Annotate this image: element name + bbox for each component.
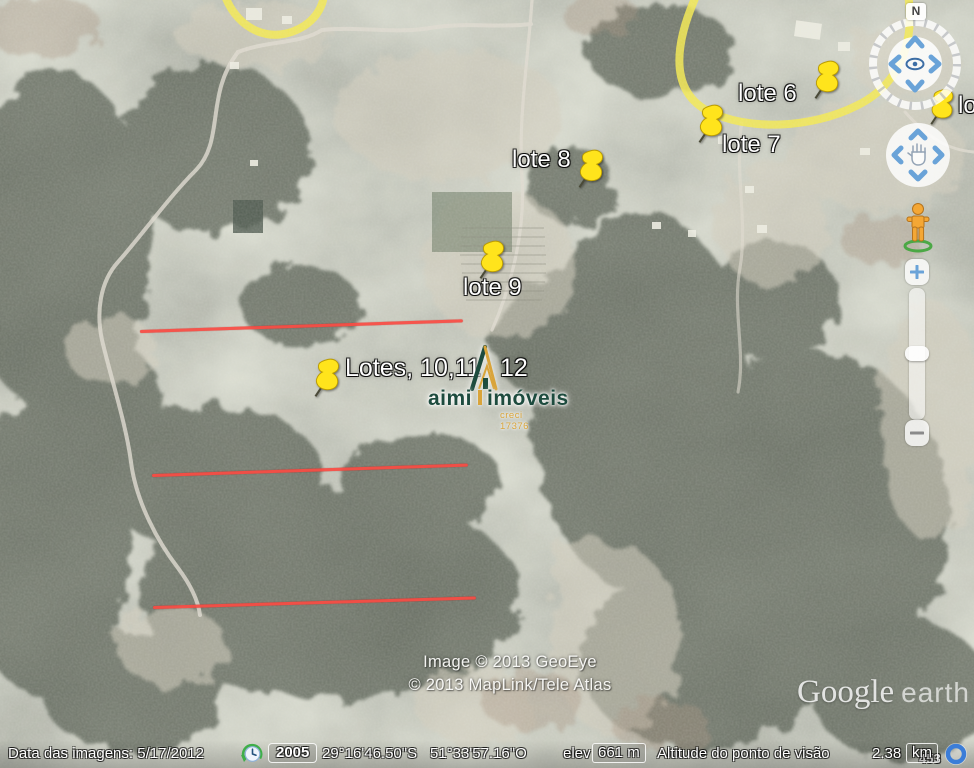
pegman-figure-icon [907, 204, 929, 242]
zoom-out-button[interactable] [905, 420, 929, 446]
imagery-date-label: Data das imagens: [8, 745, 133, 762]
pushpin-icon [812, 60, 842, 102]
status-bar: Data das imagens: 5/17/2012 2005 29°16'4… [0, 740, 974, 768]
pushpin-icon [576, 148, 606, 192]
minus-icon [910, 430, 924, 436]
google-earth-watermark: Google earth [797, 674, 970, 711]
google-logo-text: Google [797, 674, 894, 711]
placemark-label: Lotes, 10,11 [345, 356, 481, 381]
google-earth-viewport: lote 6 lote 7 lote 8 lote 9 lo Lotes, 10… [0, 0, 974, 768]
compass-north-tab[interactable]: N [906, 3, 926, 20]
imagery-credits: Image © 2013 GeoEye © 2013 MapLink/Tele … [385, 651, 635, 697]
elevation-label: elev [563, 745, 591, 762]
brand-name-secondary: imóveis [487, 387, 569, 410]
streaming-indicator-icon [943, 741, 969, 767]
latitude-readout: 29°16'46.50"S [322, 745, 417, 762]
historical-imagery-icon[interactable] [240, 742, 264, 766]
brand-separator-bar [478, 390, 482, 405]
brand-name-primary: aimi [428, 387, 472, 410]
brand-wordmark: aimiimóveis [428, 388, 569, 409]
credit-line-1: Image © 2013 GeoEye [385, 651, 635, 674]
credit-line-2: © 2013 MapLink/Tele Atlas [385, 674, 635, 697]
imagery-date-value: 5/17/2012 [137, 745, 204, 762]
placemark-label: lote 8 [512, 148, 571, 172]
view-altitude-unit: km [906, 743, 938, 763]
plus-icon [910, 265, 924, 279]
elevation-value: 661 m [592, 743, 646, 763]
view-altitude-label: Altitude do ponto de visão [657, 745, 830, 762]
placemark-label: lote 7 [722, 133, 781, 157]
longitude-readout: 51°33'57.16"O [430, 745, 527, 762]
pushpin-icon [312, 358, 342, 400]
view-altitude-value: 2.38 [872, 745, 901, 762]
zoom-in-button[interactable] [905, 259, 929, 285]
brand-registration: creci 17376 [500, 410, 529, 432]
pegman[interactable] [899, 198, 937, 254]
imagery-date: Data das imagens: 5/17/2012 [8, 745, 204, 762]
time-slider-year[interactable]: 2005 [268, 743, 317, 763]
aimi-logo-mark [468, 344, 498, 391]
zoom-slider-thumb[interactable] [905, 346, 929, 361]
placemark-label: 12 [500, 356, 528, 381]
placemark-label: lote 6 [738, 82, 797, 106]
placemark-label: lote 9 [463, 276, 522, 300]
move-joystick[interactable] [884, 121, 952, 189]
earth-logo-text: earth [901, 677, 970, 709]
